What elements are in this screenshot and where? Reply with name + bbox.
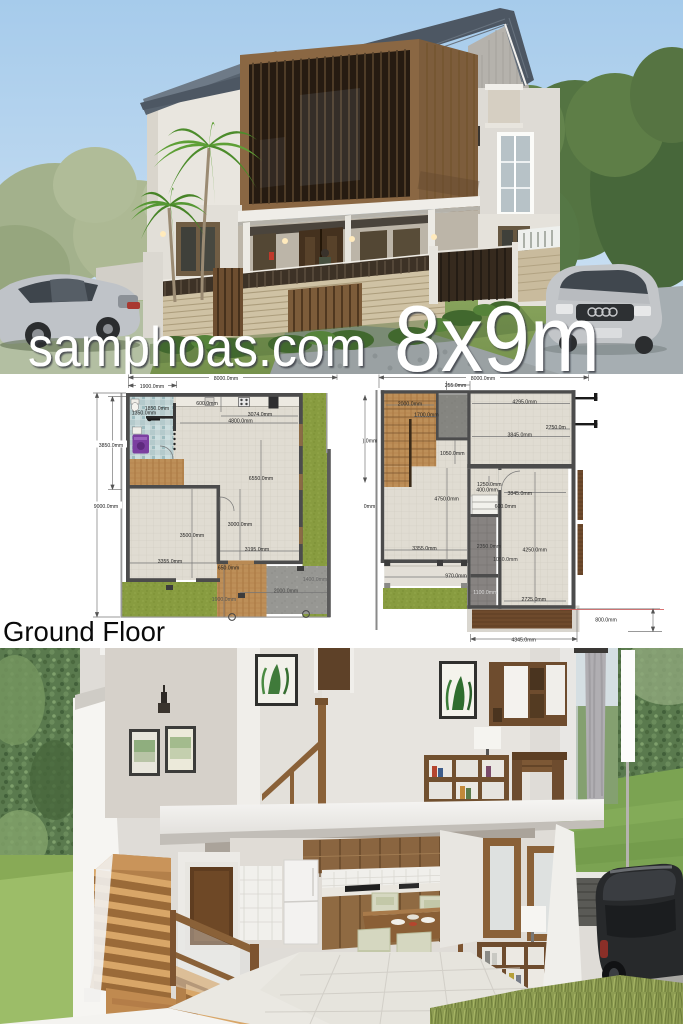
svg-text:4345.0mm: 4345.0mm	[511, 637, 536, 643]
svg-text:255.0mm: 255.0mm	[445, 383, 467, 389]
svg-text:650.0mm: 650.0mm	[218, 566, 240, 572]
svg-text:1700.0mm: 1700.0mm	[414, 412, 439, 418]
svg-text:3000.0mm: 3000.0mm	[228, 522, 253, 528]
svg-text:4295.0mm: 4295.0mm	[512, 400, 537, 406]
svg-text:3850.0mm: 3850.0mm	[99, 443, 124, 449]
svg-text:3355.0mm: 3355.0mm	[158, 559, 183, 565]
svg-text:6550.0mm: 6550.0mm	[249, 476, 274, 482]
svg-text:4750.0mm: 4750.0mm	[434, 497, 459, 503]
svg-text:8000.0mm: 8000.0mm	[214, 376, 239, 382]
svg-text:2350.0mm: 2350.0mm	[477, 544, 502, 550]
svg-text:1900.0mm: 1900.0mm	[140, 384, 165, 390]
svg-text:4800.0mm: 4800.0mm	[228, 419, 253, 425]
svg-text:3074.0mm: 3074.0mm	[248, 412, 273, 418]
svg-text:0mm: 0mm	[364, 504, 376, 510]
svg-text:8000.0mm: 8000.0mm	[471, 376, 496, 382]
svg-text:Ground Floor: Ground Floor	[3, 616, 165, 647]
svg-text:samphoas.com: samphoas.com	[28, 315, 366, 374]
svg-text:3845.0mm: 3845.0mm	[508, 491, 533, 497]
svg-text:3500.0mm: 3500.0mm	[180, 533, 205, 539]
svg-text:2725.0mm: 2725.0mm	[522, 597, 547, 603]
svg-text:1400.0mm: 1400.0mm	[303, 577, 328, 583]
svg-text:4250.0mm: 4250.0mm	[522, 548, 547, 554]
svg-text:600.0mm: 600.0mm	[196, 401, 218, 407]
svg-text:).0mm: ).0mm	[363, 439, 378, 445]
svg-text:1100.0mm: 1100.0mm	[473, 590, 497, 596]
svg-text:1050.0mm: 1050.0mm	[440, 451, 465, 457]
svg-text:2750.0m: 2750.0m	[546, 425, 566, 431]
svg-text:970.0mm: 970.0mm	[445, 573, 467, 579]
svg-text:2000.0mm: 2000.0mm	[398, 401, 423, 407]
svg-text:1900.0mm: 1900.0mm	[212, 597, 237, 603]
svg-text:800.0mm: 800.0mm	[595, 617, 617, 623]
svg-text:400.0mm: 400.0mm	[476, 487, 498, 493]
svg-text:2000.0mm: 2000.0mm	[274, 589, 299, 595]
svg-text:9000.0mm: 9000.0mm	[94, 504, 119, 510]
svg-text:8x9m: 8x9m	[394, 286, 600, 374]
svg-text:3355.0mm: 3355.0mm	[412, 546, 437, 552]
svg-text:1050.0mm: 1050.0mm	[493, 557, 518, 563]
svg-text:1850.0mm: 1850.0mm	[145, 406, 170, 412]
svg-text:3845.0mm: 3845.0mm	[508, 433, 533, 439]
svg-text:3195.0mm: 3195.0mm	[245, 547, 270, 553]
svg-text:600.0mm: 600.0mm	[495, 504, 517, 510]
